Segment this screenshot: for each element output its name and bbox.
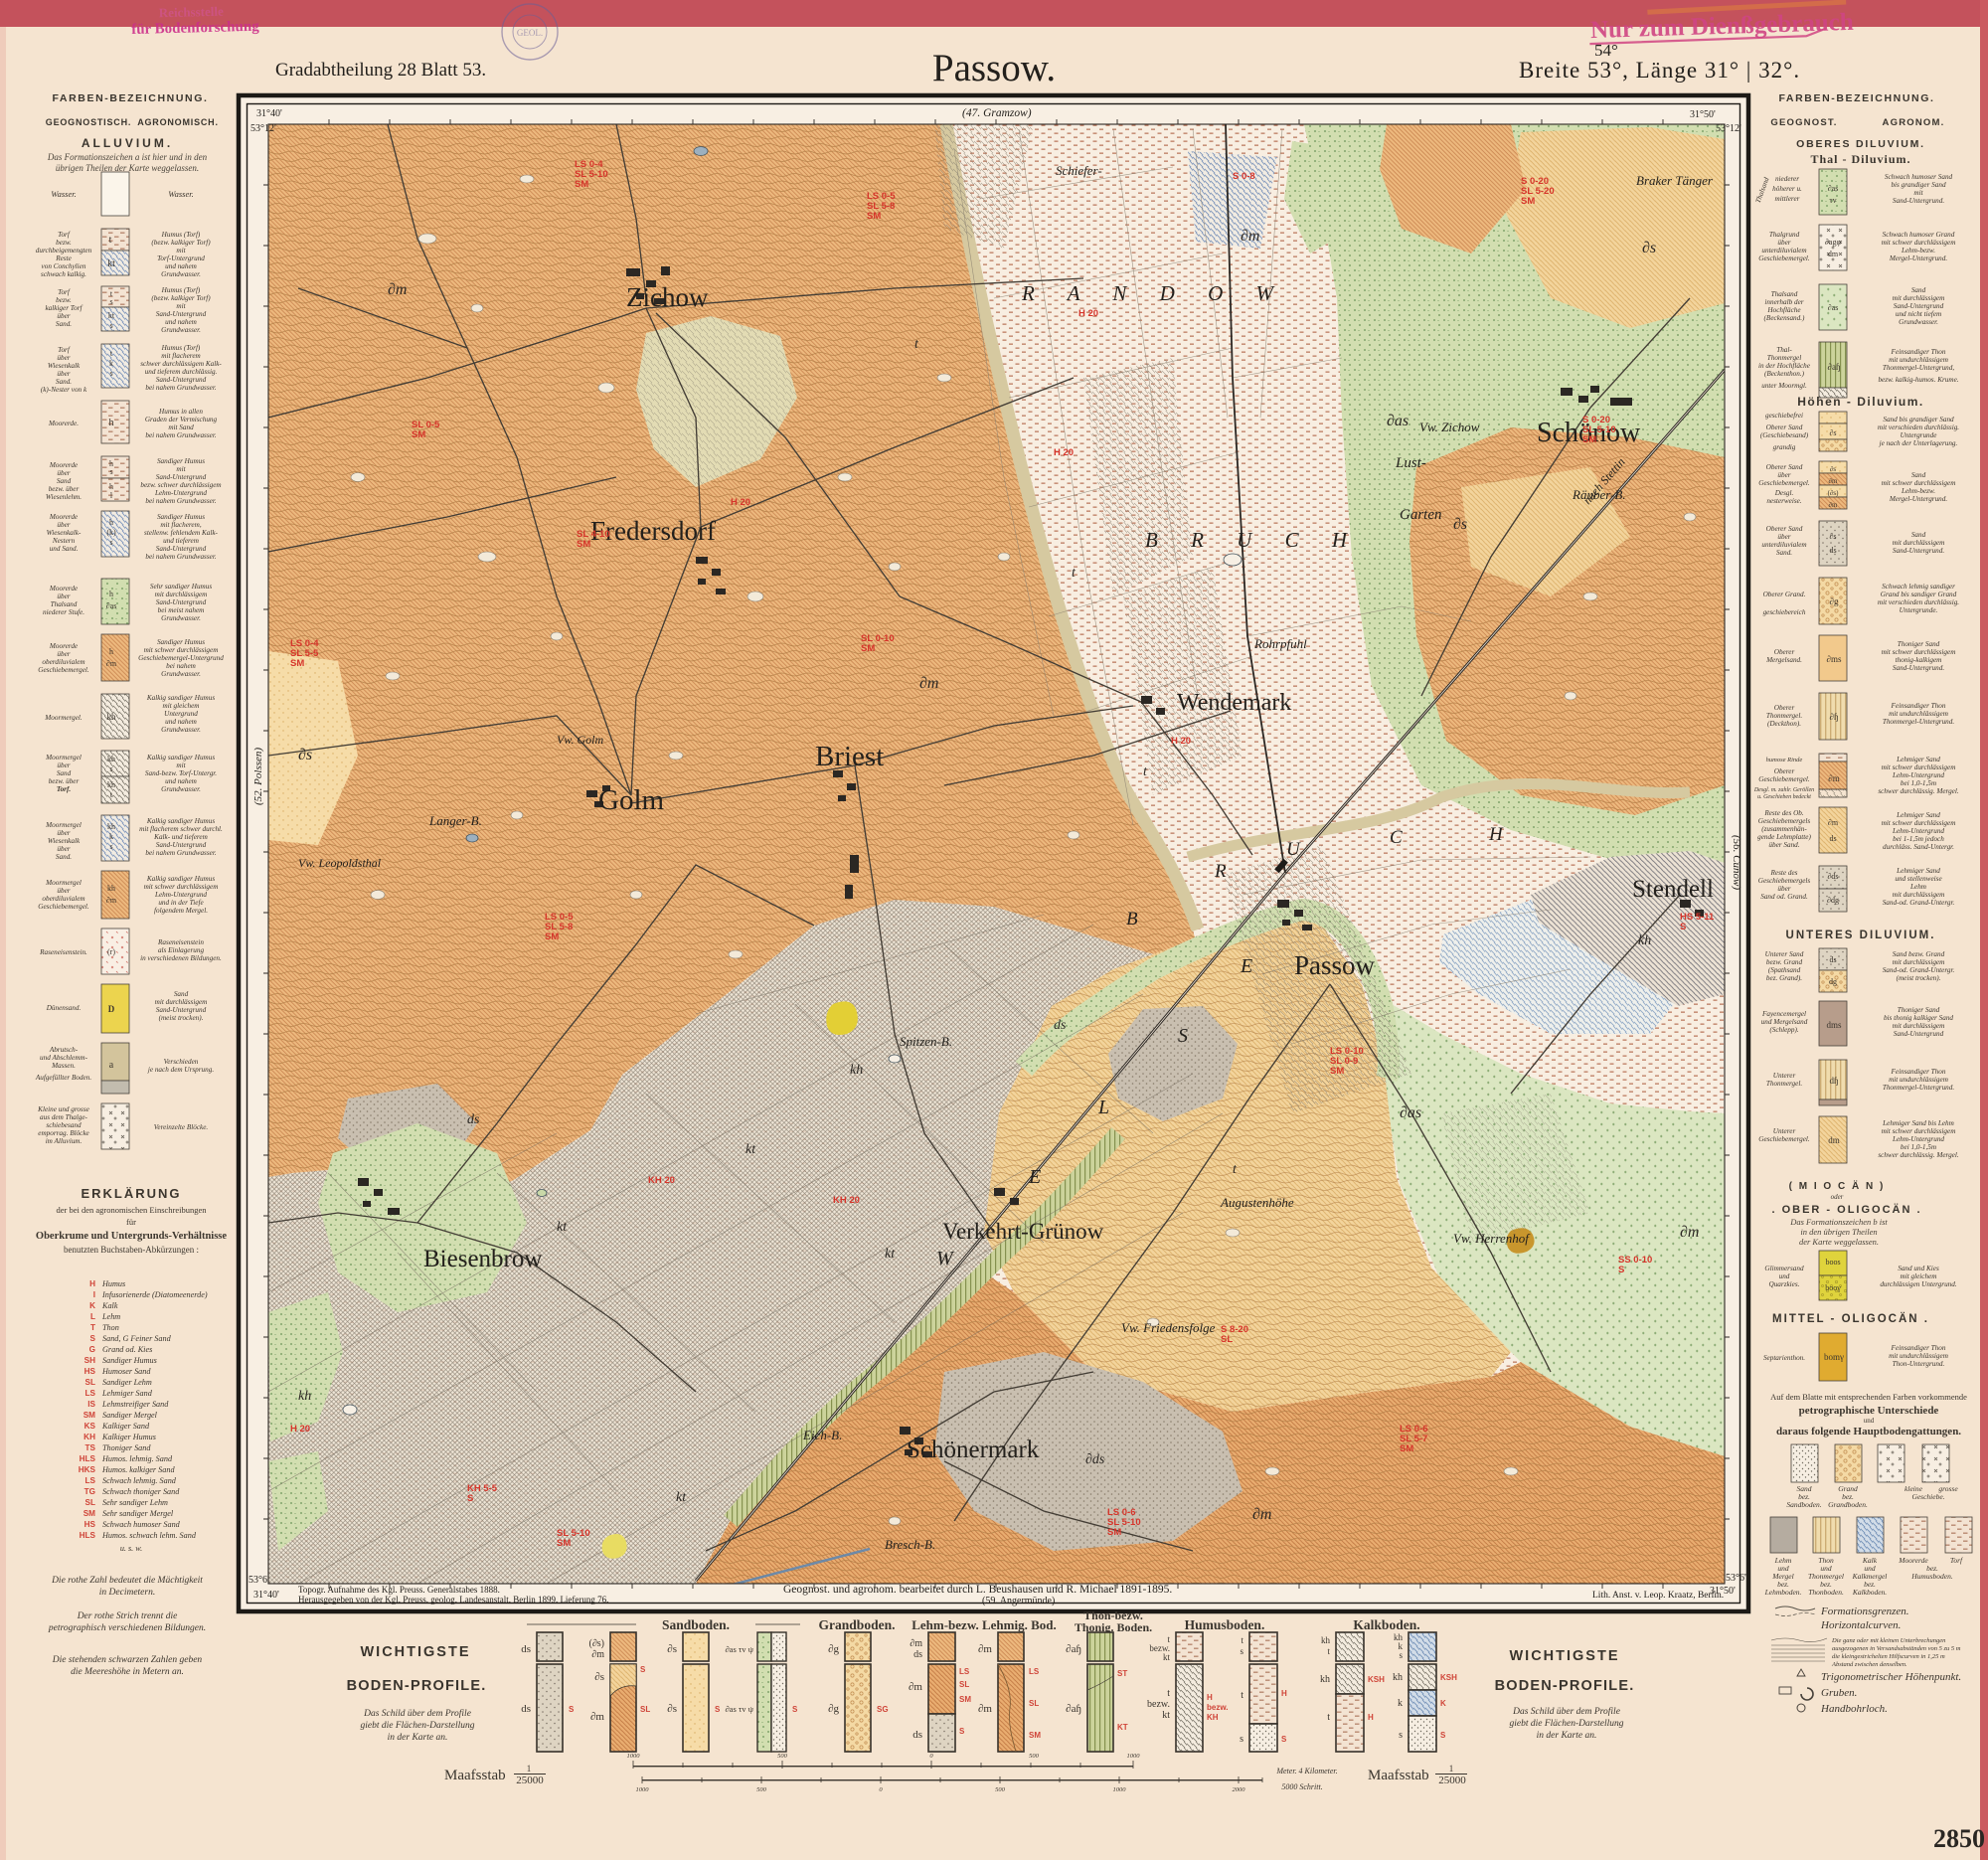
svg-text:ST: ST (1117, 1669, 1127, 1678)
svg-text:kalkiger Torf: kalkiger Torf (45, 304, 83, 312)
svg-text:Unterer: Unterer (1773, 1072, 1796, 1080)
svg-text:kh: kh (1320, 1674, 1330, 1685)
svg-text:1000: 1000 (1127, 1753, 1141, 1760)
svg-text:Schwach humoser Sand: Schwach humoser Sand (102, 1520, 181, 1529)
svg-text:Abrutsch-: Abrutsch- (49, 1046, 79, 1054)
svg-text:Thalsand: Thalsand (51, 600, 78, 608)
svg-text:über: über (1777, 239, 1790, 247)
svg-text:S: S (1680, 922, 1686, 932)
svg-text:benutzten Buchstaben-Abkürzung: benutzten Buchstaben-Abkürzungen : (64, 1245, 199, 1255)
svg-text:Gradabtheilung 28 Blatt 53.: Gradabtheilung 28 Blatt 53. (275, 60, 486, 81)
svg-text:∂m: ∂m (978, 1643, 992, 1655)
svg-text:schwer durchlässig. Mergel.: schwer durchlässig. Mergel. (1878, 787, 1959, 795)
svg-text:(∂s): (∂s) (589, 1638, 605, 1649)
svg-text:Septarienthon.: Septarienthon. (1763, 1354, 1805, 1362)
svg-text:Geschiebemergel.: Geschiebemergel. (38, 903, 89, 911)
svg-text:TG: TG (84, 1487, 95, 1496)
svg-text:mit: mit (1913, 189, 1923, 197)
svg-text:Untergrunde: Untergrunde (1901, 431, 1938, 439)
svg-text:über: über (57, 761, 70, 769)
svg-text:31°40': 31°40' (253, 1590, 279, 1601)
svg-text:Lehm-Untergrund: Lehm-Untergrund (154, 891, 207, 899)
svg-text:Kalkig sandiger Humus: Kalkig sandiger Humus (146, 694, 215, 702)
svg-text:BODEN-PROFILE.: BODEN-PROFILE. (1495, 1678, 1635, 1694)
svg-text:bei 1,0-1,5m: bei 1,0-1,5m (1901, 1143, 1936, 1151)
svg-text:t: t (109, 235, 112, 246)
svg-text:bomγ: bomγ (1824, 1352, 1844, 1362)
svg-text:Lehmiger Sand: Lehmiger Sand (1896, 756, 1940, 763)
svg-text:s: s (1399, 1730, 1403, 1741)
svg-text:Oberer: Oberer (1774, 767, 1795, 775)
svg-text:kh: kh (850, 1063, 863, 1078)
svg-text:Humusboden.: Humusboden. (1185, 1617, 1265, 1632)
svg-text:mit durchlässigem: mit durchlässigem (1893, 958, 1945, 966)
svg-text:Spitzen-B.: Spitzen-B. (900, 1034, 952, 1049)
svg-text:S: S (959, 1727, 965, 1736)
svg-text:für: für (126, 1217, 136, 1227)
svg-text:kh: kh (107, 780, 115, 789)
svg-text:Geschiebemergel.: Geschiebemergel. (38, 666, 89, 674)
svg-text:kh: kh (1393, 1672, 1403, 1683)
svg-text:∂m: ∂m (106, 896, 117, 905)
svg-text:Lehmiger Sand bis Lehm: Lehmiger Sand bis Lehm (1882, 1119, 1954, 1127)
svg-text:KH: KH (1207, 1713, 1219, 1722)
svg-text:h: h (109, 418, 114, 428)
svg-text:Sand-Untergrund: Sand-Untergrund (1894, 302, 1944, 310)
svg-text:Abstand zwischen denselben.: Abstand zwischen denselben. (1831, 1661, 1907, 1668)
svg-text:K: K (1440, 1699, 1446, 1708)
svg-text:Sand-Untergrund: Sand-Untergrund (156, 310, 207, 318)
svg-text:s: s (109, 764, 112, 773)
svg-text:53°6': 53°6' (248, 1575, 269, 1586)
svg-text:WICHTIGSTE: WICHTIGSTE (1509, 1648, 1619, 1664)
svg-text:der bei den agronomischen Eins: der bei den agronomischen Einschreibunge… (56, 1205, 207, 1215)
svg-text:WICHTIGSTE: WICHTIGSTE (360, 1644, 470, 1660)
svg-text:und: und (1779, 1272, 1790, 1280)
svg-text:Sand, G Feiner Sand: Sand, G Feiner Sand (102, 1334, 172, 1343)
svg-text:Grundwasser.: Grundwasser. (161, 670, 201, 678)
svg-text:Lehmiger Sand: Lehmiger Sand (101, 1389, 153, 1398)
svg-text:∂as τv ψ: ∂as τv ψ (725, 1644, 753, 1654)
svg-text:und Abschlemm-: und Abschlemm- (40, 1054, 88, 1062)
svg-text:im Alluvium.: im Alluvium. (46, 1137, 83, 1145)
svg-text:Feinsandiger Thon: Feinsandiger Thon (1891, 348, 1946, 356)
svg-text:D: D (108, 1004, 115, 1014)
svg-text:Sand.: Sand. (56, 378, 72, 386)
svg-text:Sehr sandiger Mergel: Sehr sandiger Mergel (102, 1509, 174, 1518)
svg-text:FARBEN-BEZEICHNUNG.: FARBEN-BEZEICHNUNG. (1779, 92, 1935, 104)
svg-text:HLS: HLS (80, 1454, 96, 1463)
svg-text:bei 1,0-1,5m: bei 1,0-1,5m (1901, 779, 1936, 787)
svg-text:Sand: Sand (174, 990, 189, 998)
svg-text:über: über (57, 845, 70, 853)
svg-text:ds: ds (1829, 834, 1836, 843)
svg-text:h: h (109, 518, 113, 527)
svg-text:SL: SL (959, 1680, 969, 1689)
svg-text:petrographisch verschiedenen B: petrographisch verschiedenen Bildungen. (48, 1623, 206, 1633)
svg-text:über: über (1777, 533, 1790, 541)
svg-text:kh: kh (1321, 1635, 1331, 1645)
svg-text:Glimmersand: Glimmersand (1764, 1265, 1804, 1272)
svg-text:Feinsandiger Thon: Feinsandiger Thon (1891, 1344, 1946, 1352)
svg-text:L: L (1097, 1097, 1109, 1118)
svg-text:∂s: ∂s (594, 1671, 604, 1683)
svg-text:in der Hochfläche: in der Hochfläche (1758, 362, 1811, 370)
svg-text:höherer u.: höherer u. (1772, 185, 1802, 193)
svg-text:Humus in allen: Humus in allen (158, 408, 203, 416)
svg-text:500: 500 (777, 1753, 788, 1760)
svg-text:S: S (640, 1665, 646, 1674)
svg-text:mit flacherem: mit flacherem (161, 352, 200, 360)
svg-text:∂agφ: ∂agφ (1825, 238, 1842, 247)
svg-text:Sandiger Humus: Sandiger Humus (157, 638, 205, 646)
svg-text:Thon: Thon (102, 1323, 119, 1332)
svg-text:GEOL.: GEOL. (517, 28, 543, 38)
svg-text:K: K (89, 1301, 95, 1310)
svg-text:Sand: Sand (1911, 286, 1926, 294)
svg-text:Kalk: Kalk (101, 1301, 118, 1310)
svg-text:Sand bis grandiger Sand: Sand bis grandiger Sand (1883, 416, 1954, 423)
svg-text:Grundwasser.: Grundwasser. (161, 326, 201, 334)
svg-text:S: S (1618, 1265, 1624, 1275)
svg-text:petrographische Unterschiede: petrographische Unterschiede (1799, 1405, 1939, 1417)
svg-text:mit durchlässigem: mit durchlässigem (155, 998, 208, 1006)
svg-text:Torf: Torf (58, 231, 71, 239)
svg-text:Geognost. und agronom. bearbei: Geognost. und agronom. bearbeitet durch … (783, 1584, 1172, 1596)
svg-text:∂s: ∂s (1829, 428, 1836, 437)
svg-text:bezw. kalkig-humos. Krume.: bezw. kalkig-humos. Krume. (1878, 376, 1958, 384)
svg-text:∂m: ∂m (1680, 1224, 1699, 1241)
svg-text:SH: SH (84, 1356, 95, 1365)
svg-text:schiebesand: schiebesand (46, 1121, 82, 1129)
svg-text:t: t (1241, 1690, 1243, 1701)
svg-text:H: H (1368, 1713, 1374, 1722)
svg-text:kt: kt (107, 258, 115, 269)
svg-text:Grundwasser.: Grundwasser. (161, 785, 201, 793)
svg-text:Lehm-Untergrund: Lehm-Untergrund (1892, 827, 1944, 835)
svg-text:Sand.: Sand. (1776, 549, 1792, 557)
svg-text:SM: SM (1400, 1443, 1413, 1454)
svg-text:Fayencemergel: Fayencemergel (1761, 1010, 1806, 1018)
svg-text:bei nahem Grundwasser.: bei nahem Grundwasser. (145, 384, 216, 392)
svg-text:KSH: KSH (1440, 1673, 1457, 1682)
svg-text:Thoniger Sand: Thoniger Sand (1898, 1006, 1940, 1014)
svg-text:Lehmboden.: Lehmboden. (1764, 1588, 1802, 1597)
svg-text:SL: SL (1029, 1699, 1039, 1708)
svg-text:∂s: ∂s (667, 1703, 677, 1715)
svg-text:Sandiger Lehm: Sandiger Lehm (102, 1378, 152, 1387)
svg-text:L: L (90, 1312, 95, 1321)
svg-text:Lehm-Untergrund: Lehm-Untergrund (154, 489, 207, 497)
svg-text:mit undurchlässigem: mit undurchlässigem (1889, 710, 1948, 718)
svg-text:kh: kh (107, 822, 115, 831)
svg-text:h: h (109, 590, 113, 598)
svg-text:. OBER - OLIGOCÄN .: . OBER - OLIGOCÄN . (1771, 1203, 1921, 1216)
svg-text:Reste: Reste (55, 254, 72, 262)
svg-text:Moorerde: Moorerde (1898, 1556, 1928, 1565)
svg-text:kt: kt (1163, 1652, 1171, 1662)
svg-text:Humoser Sand: Humoser Sand (101, 1367, 151, 1376)
svg-text:Raseneisenstein: Raseneisenstein (157, 938, 204, 946)
svg-text:Oberer Sand: Oberer Sand (1766, 525, 1803, 533)
svg-text:mit: mit (176, 302, 186, 310)
svg-text:mit verschieden durchlässig.: mit verschieden durchlässig. (1878, 598, 1959, 606)
svg-text:Sand.: Sand. (56, 853, 72, 861)
svg-text:mit verschieden durchlässig.: mit verschieden durchlässig. (1878, 423, 1959, 431)
svg-text:S: S (1178, 1025, 1188, 1047)
svg-text:Humos. schwach lehm. Sand: Humos. schwach lehm. Sand (101, 1531, 197, 1540)
svg-text:∂m: ∂m (388, 281, 407, 298)
svg-text:Grand od. Kies: Grand od. Kies (102, 1345, 152, 1354)
svg-text:mit: mit (176, 761, 186, 769)
svg-text:Geschiebe.: Geschiebe. (1911, 1492, 1944, 1501)
svg-text:Schwach lehmig. Sand: Schwach lehmig. Sand (102, 1476, 177, 1485)
svg-text:aus dem Thalge-: aus dem Thalge- (40, 1113, 88, 1121)
svg-text:Sand-Untergrund: Sand-Untergrund (1894, 1030, 1944, 1038)
svg-text:in der Karte an.: in der Karte an. (388, 1733, 448, 1743)
svg-text:Passow: Passow (1294, 950, 1376, 980)
svg-text:ds: ds (467, 1112, 480, 1127)
svg-text:Aufgefüllter Boden.: Aufgefüllter Boden. (35, 1074, 91, 1082)
svg-text:Wendemark: Wendemark (1177, 690, 1291, 716)
svg-text:HLS: HLS (80, 1531, 96, 1540)
svg-text:S: S (715, 1705, 721, 1714)
svg-text:mit undurchlässigem: mit undurchlässigem (1889, 356, 1948, 364)
svg-text:bezw. über: bezw. über (49, 777, 80, 785)
svg-text:unter Moormgl.: unter Moormgl. (1761, 382, 1807, 390)
svg-text:t: t (1327, 1712, 1330, 1723)
svg-text:Moorerde: Moorerde (49, 513, 79, 521)
svg-text:gende Lehmplatte): gende Lehmplatte) (1757, 833, 1811, 841)
svg-text:KSH: KSH (1368, 1675, 1385, 1684)
svg-text:Hochfläche: Hochfläche (1766, 306, 1801, 314)
svg-text:H 20: H 20 (731, 497, 750, 508)
svg-text:schwer durchlässig. Mergel.: schwer durchlässig. Mergel. (1878, 1151, 1959, 1159)
svg-text:Schönermark: Schönermark (907, 1437, 1040, 1463)
svg-text:∂ms: ∂ms (1827, 654, 1842, 664)
svg-text:1000: 1000 (627, 1753, 641, 1760)
svg-text:je nach der Unterlagerung.: je nach der Unterlagerung. (1879, 439, 1958, 447)
svg-text:Raseneisenstein.: Raseneisenstein. (39, 948, 87, 956)
svg-text:Moormergel: Moormergel (45, 821, 82, 829)
svg-text:über Sand.: über Sand. (1768, 841, 1799, 849)
svg-text:Sehr sandiger Humus: Sehr sandiger Humus (150, 583, 212, 591)
svg-text:Moorerde.: Moorerde. (48, 420, 79, 427)
svg-text:Sand-od. Grand-Untergr.: Sand-od. Grand-Untergr. (1883, 966, 1955, 974)
svg-text:Höhen - Diluvium.: Höhen - Diluvium. (1797, 395, 1924, 409)
svg-text:Sand und Kies: Sand und Kies (1898, 1265, 1939, 1272)
svg-text:AGRONOM.: AGRONOM. (1883, 117, 1945, 128)
svg-text:s: s (109, 321, 112, 330)
svg-text:∂m: ∂m (909, 1681, 922, 1693)
svg-text:S: S (1281, 1735, 1287, 1744)
svg-text:53°6': 53°6' (1726, 1573, 1746, 1584)
svg-text:W: W (936, 1248, 955, 1269)
svg-text:Sandiger Humus: Sandiger Humus (157, 513, 205, 521)
svg-text:(52. Polssen): (52. Polssen) (252, 748, 264, 805)
svg-text:Schwach thoniger Sand: Schwach thoniger Sand (102, 1487, 180, 1496)
svg-text:mit flacherem schwer durchl.: mit flacherem schwer durchl. (139, 825, 223, 833)
svg-text:Lust-: Lust- (1395, 455, 1426, 471)
svg-text:Garten: Garten (1400, 507, 1442, 523)
svg-text:mit schwer durchlässigem: mit schwer durchlässigem (1882, 479, 1956, 487)
svg-text:∂as: ∂as (1387, 413, 1408, 429)
svg-text:daraus folgende Hauptbodengatt: daraus folgende Hauptbodengattungen. (1776, 1426, 1961, 1437)
svg-text:Torf: Torf (58, 346, 71, 354)
svg-text:und nahem: und nahem (165, 262, 197, 270)
svg-text:1: 1 (527, 1764, 532, 1774)
svg-text:Thal - Diluvium.: Thal - Diluvium. (1810, 152, 1910, 166)
svg-text:k: k (1398, 1698, 1403, 1709)
svg-text:Kalkboden.: Kalkboden. (1353, 1617, 1419, 1632)
svg-text:Moormergel: Moormergel (45, 754, 82, 761)
svg-text:kt: kt (745, 1142, 756, 1157)
svg-text:Thonmergel-Untergrund,: Thonmergel-Untergrund, (1883, 364, 1955, 372)
svg-text:∂s: ∂s (298, 747, 312, 763)
svg-text:SM: SM (1029, 1731, 1041, 1740)
svg-text:Sand: Sand (57, 477, 72, 485)
svg-text:und in der Tiefe: und in der Tiefe (158, 899, 204, 907)
svg-text:s: s (1240, 1734, 1243, 1745)
svg-text:Wiesenlehm.: Wiesenlehm. (46, 493, 82, 501)
svg-text:Lehmstreifiger Sand: Lehmstreifiger Sand (101, 1400, 169, 1409)
svg-text:E: E (1240, 955, 1252, 977)
svg-text:∂g: ∂g (828, 1703, 839, 1715)
svg-text:HS: HS (84, 1367, 96, 1376)
svg-text:Kalkig sandiger Humus: Kalkig sandiger Humus (146, 754, 215, 761)
svg-text:(Deckthon).: (Deckthon). (1767, 720, 1801, 728)
svg-text:Maafsstab: Maafsstab (444, 1768, 506, 1783)
svg-text:Briest: Briest (815, 741, 884, 772)
svg-text:Lehm-bezw.: Lehm-bezw. (1901, 487, 1935, 495)
svg-text:H: H (89, 1279, 95, 1288)
svg-text:∂m: ∂m (910, 1638, 922, 1649)
svg-text:Kalk- und tieferem: Kalk- und tieferem (153, 833, 208, 841)
svg-text:T: T (90, 1323, 95, 1332)
svg-text:∂as: ∂as (1828, 303, 1839, 312)
svg-text:Grandboden.: Grandboden. (1828, 1500, 1868, 1509)
svg-text:KH 20: KH 20 (648, 1175, 675, 1186)
svg-text:und nahem: und nahem (165, 777, 197, 785)
svg-text:Massen.: Massen. (51, 1062, 76, 1070)
svg-text:humose Rinde: humose Rinde (1766, 757, 1803, 763)
svg-text:Maafsstab: Maafsstab (1368, 1768, 1429, 1783)
svg-text:U: U (1286, 839, 1301, 860)
svg-text:durchläss. Sand-Untergr.: durchläss. Sand-Untergr. (1883, 843, 1954, 851)
svg-text:ds: ds (1829, 546, 1836, 555)
svg-text:Verschieden: Verschieden (164, 1058, 199, 1066)
svg-text:∂s: ∂s (1642, 240, 1656, 256)
svg-text:bei nahem Grundwasser.: bei nahem Grundwasser. (145, 431, 216, 439)
svg-text:über: über (57, 592, 70, 600)
svg-text:C: C (1390, 827, 1403, 848)
svg-text:bei nahem Grundwasser.: bei nahem Grundwasser. (145, 849, 216, 857)
svg-text:Lehm-bezw.: Lehm-bezw. (1901, 247, 1935, 254)
svg-text:und: und (1864, 1417, 1875, 1425)
svg-text:Die ganz oder mit kleinen Unte: Die ganz oder mit kleinen Unterbrechunge… (1831, 1637, 1945, 1644)
svg-text:Kalkig sandiger Humus: Kalkig sandiger Humus (146, 875, 215, 883)
svg-text:∂m: ∂m (1241, 228, 1259, 245)
svg-text:H: H (1281, 1689, 1287, 1698)
svg-text:über: über (1777, 471, 1790, 479)
svg-text:Sand-bezw. Torf-Untergr.: Sand-bezw. Torf-Untergr. (145, 769, 217, 777)
svg-text:Eich-B.: Eich-B. (802, 1428, 842, 1442)
svg-text:Grundwasser.: Grundwasser. (161, 726, 201, 734)
svg-text:bezw.: bezw. (56, 296, 72, 304)
svg-text:Mergel-Untergrund.: Mergel-Untergrund. (1889, 495, 1948, 503)
svg-text:∂g: ∂g (1830, 596, 1839, 606)
svg-text:und nahem: und nahem (165, 318, 197, 326)
svg-text:kt: kt (1162, 1710, 1170, 1721)
svg-text:mit: mit (176, 247, 186, 254)
svg-text:a: a (109, 1060, 114, 1071)
svg-text:Thonmergel: Thonmergel (1767, 354, 1801, 362)
svg-text:Grundwasser.: Grundwasser. (1899, 318, 1938, 326)
svg-text:lS: lS (87, 1400, 95, 1409)
svg-text:(Geschiebesand): (Geschiebesand) (1760, 431, 1809, 439)
svg-text:Herausgegeben von der Kgl. Pre: Herausgegeben von der Kgl. Preuss. geolo… (298, 1595, 608, 1605)
svg-text:SM: SM (1521, 196, 1535, 207)
svg-text:Sand: Sand (57, 769, 72, 777)
svg-text:53°12': 53°12' (250, 123, 276, 134)
svg-text:∂m: ∂m (1829, 477, 1838, 485)
svg-text:∂aɧ: ∂aɧ (1828, 362, 1841, 372)
svg-text:ERKLÄRUNG: ERKLÄRUNG (81, 1186, 181, 1201)
svg-text:Sand: Sand (1911, 471, 1926, 479)
svg-text:53°12': 53°12' (1716, 123, 1741, 134)
svg-text:über: über (1777, 885, 1790, 893)
svg-text:kh: kh (107, 712, 117, 722)
svg-text:Humus (Torf): Humus (Torf) (161, 231, 201, 239)
svg-text:Kalkig sandiger Humus: Kalkig sandiger Humus (146, 817, 215, 825)
svg-text:bezw.: bezw. (1207, 1703, 1228, 1712)
svg-text:Geschiebemergel.: Geschiebemergel. (1758, 254, 1810, 262)
svg-text:Lehm: Lehm (101, 1312, 120, 1321)
svg-text:die Meereshöhe in Metern an.: die Meereshöhe in Metern an. (71, 1667, 184, 1677)
svg-text:Meter. 4 Kilometer.: Meter. 4 Kilometer. (1275, 1767, 1337, 1775)
svg-text:(47. Gramzow): (47. Gramzow) (962, 107, 1032, 119)
svg-text:∂m: ∂m (1252, 1506, 1271, 1523)
svg-text:Sand-Untergrund: Sand-Untergrund (156, 473, 207, 481)
svg-text:Das Formationszeichen b ist: Das Formationszeichen b ist (1789, 1217, 1888, 1227)
svg-text:mit undurchlässigem: mit undurchlässigem (1889, 1076, 1948, 1084)
svg-text:SL: SL (640, 1705, 650, 1714)
svg-text:τv: τv (1829, 196, 1836, 205)
svg-text:Sand-Untergrund: Sand-Untergrund (156, 841, 207, 849)
svg-text:dɧ: dɧ (1830, 1076, 1839, 1086)
svg-text:Breite 53°, Länge 31° | 32°.: Breite 53°, Länge 31° | 32°. (1519, 58, 1800, 83)
svg-text:Humus (Torf): Humus (Torf) (161, 286, 201, 294)
svg-text:25000: 25000 (1438, 1775, 1466, 1786)
svg-text:SL: SL (85, 1378, 95, 1387)
svg-text:über: über (57, 354, 70, 362)
svg-text:Humusboden.: Humusboden. (1910, 1572, 1953, 1581)
svg-text:über: über (57, 829, 70, 837)
svg-text:∂aɧ: ∂aɧ (1066, 1643, 1081, 1655)
svg-text:KS: KS (84, 1422, 96, 1431)
svg-text:Vereinzelte Blöcke.: Vereinzelte Blöcke. (154, 1123, 209, 1131)
svg-text:s: s (109, 467, 112, 476)
svg-text:dm: dm (1828, 250, 1839, 258)
svg-text:Thon-Untergrund.: Thon-Untergrund. (1893, 1360, 1945, 1368)
svg-text:Oberer: Oberer (1774, 648, 1795, 656)
svg-text:über: über (57, 887, 70, 895)
svg-text:( M I O C Ä N ): ( M I O C Ä N ) (1789, 1179, 1886, 1192)
svg-text:und Mergelsand: und Mergelsand (1761, 1018, 1808, 1026)
svg-text:kh: kh (1638, 933, 1651, 948)
svg-text:Braker Tänger: Braker Tänger (1636, 173, 1714, 188)
svg-text:Geschiebemergel-Untergrund: Geschiebemergel-Untergrund (138, 654, 224, 662)
